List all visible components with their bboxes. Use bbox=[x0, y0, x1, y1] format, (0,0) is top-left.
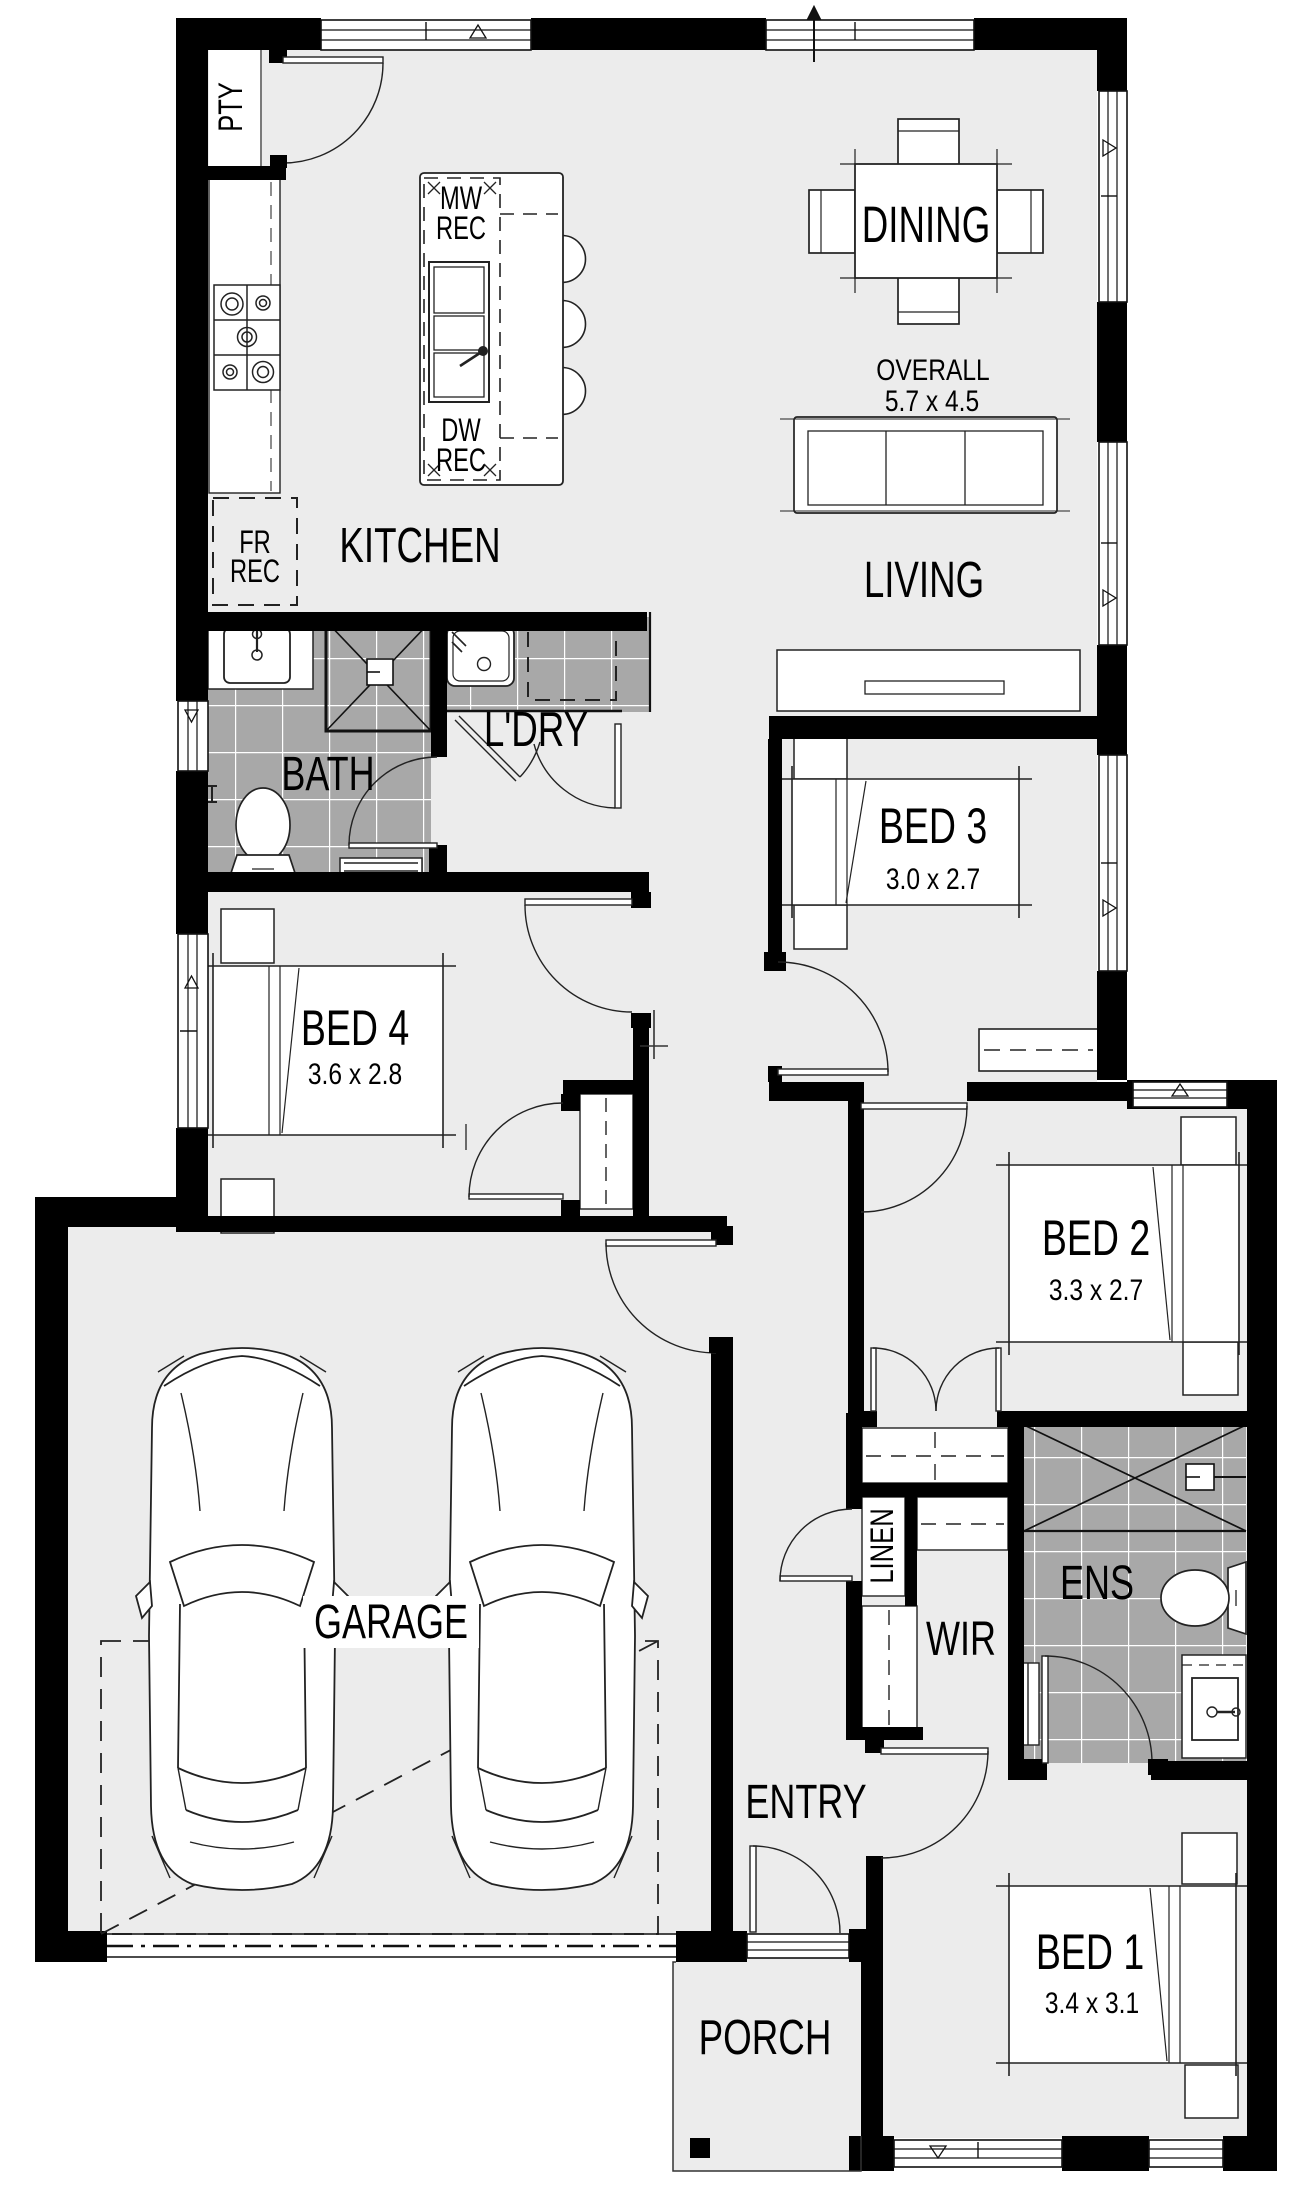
svg-text:REC: REC bbox=[436, 443, 486, 478]
svg-text:DINING: DINING bbox=[862, 197, 990, 253]
svg-text:3.6 x 2.8: 3.6 x 2.8 bbox=[308, 1057, 402, 1091]
svg-text:BED 1: BED 1 bbox=[1036, 1925, 1144, 1980]
svg-text:BED 4: BED 4 bbox=[301, 1001, 409, 1056]
svg-text:OVERALL: OVERALL bbox=[876, 353, 989, 387]
svg-text:PTY: PTY bbox=[213, 82, 250, 132]
svg-text:REC: REC bbox=[230, 554, 280, 589]
svg-text:WIR: WIR bbox=[926, 1612, 996, 1665]
svg-text:REC: REC bbox=[436, 211, 486, 246]
svg-text:L'DRY: L'DRY bbox=[484, 703, 588, 757]
svg-text:5.7 x 4.5: 5.7 x 4.5 bbox=[885, 384, 979, 418]
svg-text:BED 2: BED 2 bbox=[1042, 1211, 1150, 1266]
svg-text:ENTRY: ENTRY bbox=[745, 1775, 866, 1828]
svg-text:LINEN: LINEN bbox=[865, 1508, 900, 1583]
svg-text:PORCH: PORCH bbox=[699, 2011, 832, 2065]
svg-text:KITCHEN: KITCHEN bbox=[339, 519, 500, 573]
svg-text:3.3 x 2.7: 3.3 x 2.7 bbox=[1049, 1273, 1143, 1307]
svg-text:3.0 x 2.7: 3.0 x 2.7 bbox=[886, 862, 980, 896]
svg-text:BATH: BATH bbox=[281, 747, 374, 800]
svg-text:ENS: ENS bbox=[1060, 1556, 1134, 1609]
svg-text:BED 3: BED 3 bbox=[879, 799, 987, 854]
svg-text:GARAGE: GARAGE bbox=[314, 1595, 468, 1648]
svg-text:3.4 x 3.1: 3.4 x 3.1 bbox=[1045, 1986, 1139, 2020]
svg-text:LIVING: LIVING bbox=[864, 552, 984, 608]
